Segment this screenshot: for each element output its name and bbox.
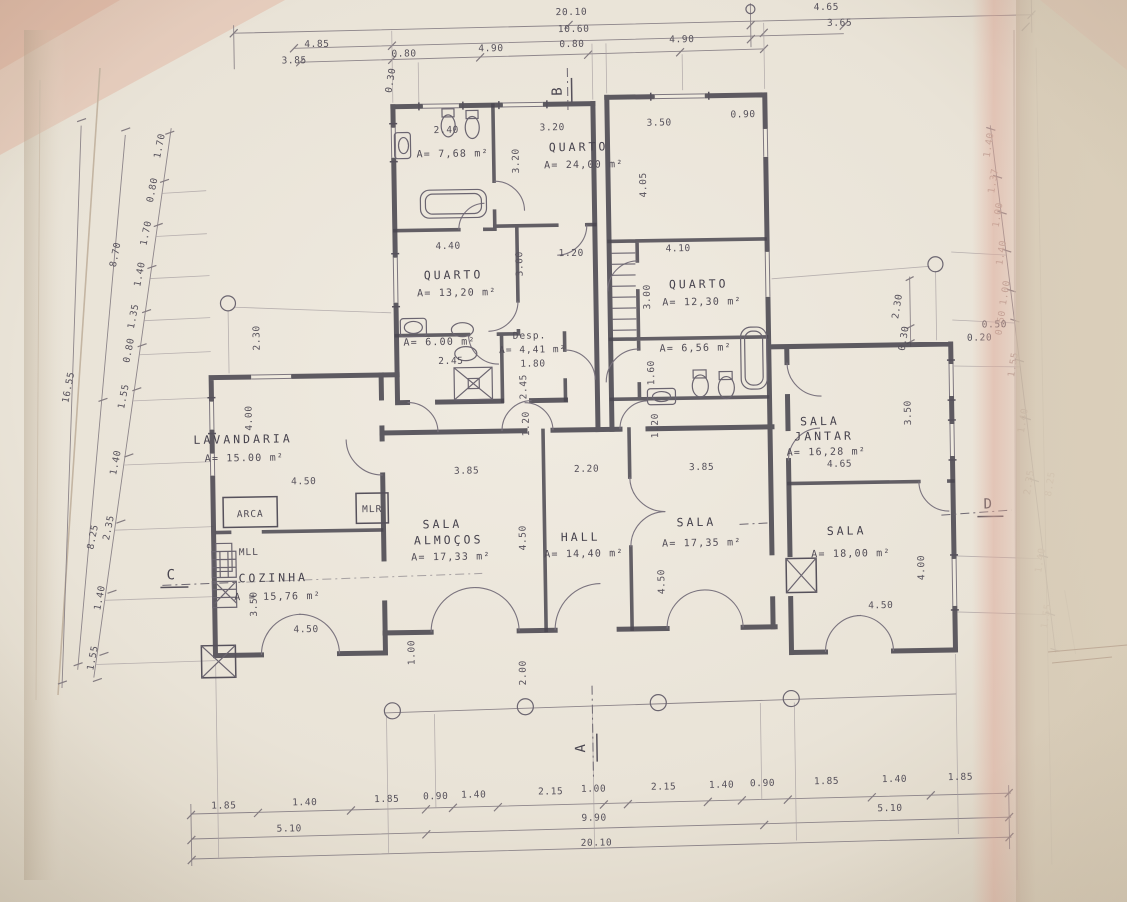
floor-plan-scan: 20.1010.604.653.654.853.850.804.900.804.… [0,0,1127,902]
vignette [0,0,1127,902]
